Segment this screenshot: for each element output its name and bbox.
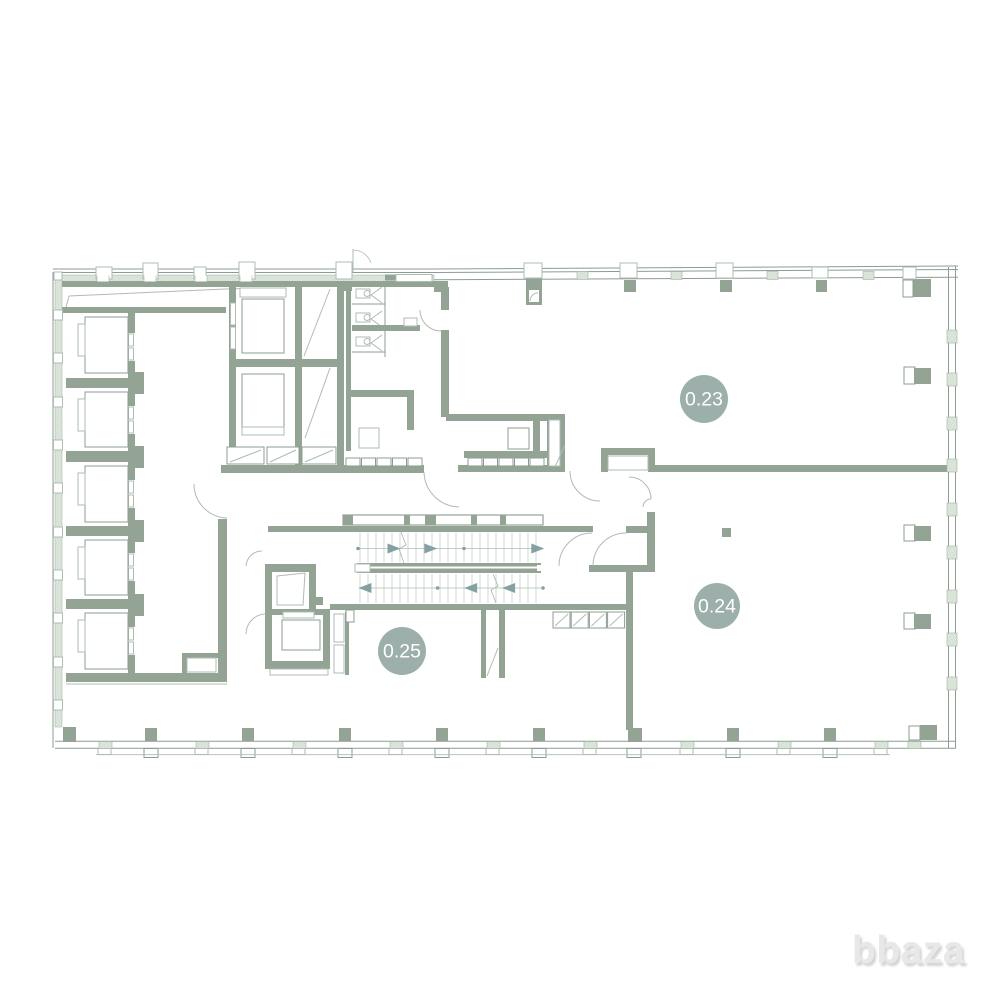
svg-text:0.24: 0.24: [698, 596, 736, 618]
svg-text:0.23: 0.23: [685, 389, 723, 411]
svg-text:0.25: 0.25: [383, 641, 421, 663]
